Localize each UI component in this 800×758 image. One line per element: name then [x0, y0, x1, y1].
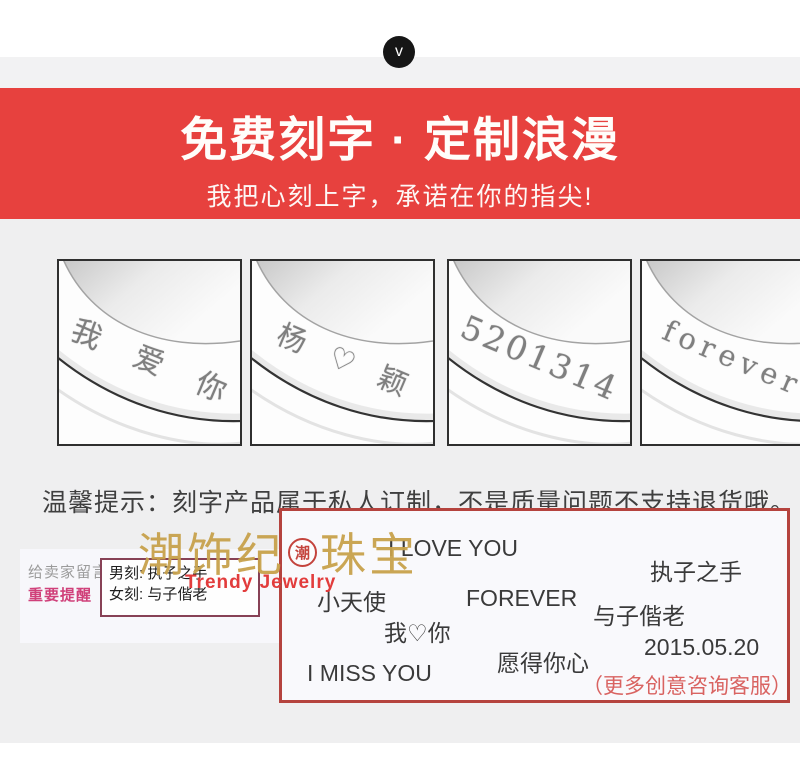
idea-phrase: 我♡你 — [384, 614, 451, 648]
product-detail-section: v 免费刻字 · 定制浪漫 我把心刻上字，承诺在你的指尖! 我 爱 你 — [0, 0, 800, 758]
idea-phrase: FOREVER — [466, 585, 577, 612]
promo-banner: 免费刻字 · 定制浪漫 我把心刻上字，承诺在你的指尖! — [0, 88, 800, 219]
idea-phrase: 2015.05.20 — [644, 634, 759, 661]
idea-phrase: I MISS YOU — [307, 660, 432, 687]
collapse-toggle-button[interactable]: v — [383, 36, 415, 68]
idea-phrase: 执子之手 — [650, 553, 742, 587]
engraving-sample-image: 杨 ♡ 颖 — [250, 259, 435, 446]
banner-title: 免费刻字 · 定制浪漫 — [0, 88, 800, 170]
engraving-sample-image: 我 爱 你 — [57, 259, 242, 446]
banner-subtitle: 我把心刻上字，承诺在你的指尖! — [0, 177, 800, 213]
important-reminder-label: 重要提醒 — [28, 584, 92, 605]
engraving-sample-image: 5201314 — [447, 259, 632, 446]
brand-english-name: Trendy Jewelry — [185, 572, 336, 594]
brand-seal-icon: 潮 — [288, 538, 317, 567]
more-ideas-note: （更多创意咨询客服） — [582, 670, 792, 700]
idea-phrase: 与子偕老 — [593, 597, 685, 631]
engraving-sample-image: forever — [640, 259, 800, 446]
bottom-white-strip — [0, 743, 800, 758]
idea-phrase: 愿得你心 — [497, 644, 589, 678]
chevron-v-icon: v — [395, 44, 403, 60]
